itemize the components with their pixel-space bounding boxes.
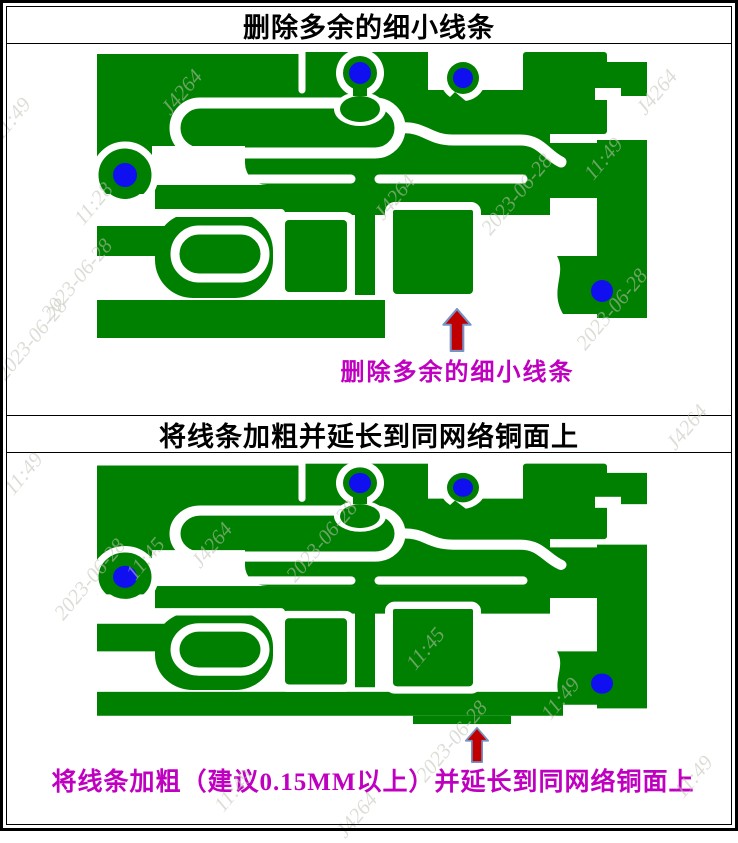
pcb-copper-art — [95, 460, 665, 736]
panel2-title: 将线条加粗并延长到同网络铜面上 — [7, 415, 731, 453]
up-arrow-icon — [442, 308, 472, 357]
panel1-title: 删除多余的细小线条 — [7, 7, 731, 44]
panel1-annotation: 删除多余的细小线条 — [285, 352, 630, 387]
watermark-text: 2023-06-28 — [0, 294, 73, 385]
watermark-text: 11:49 — [0, 448, 48, 500]
up-arrow-art — [463, 727, 491, 763]
pcb-layout-image-before — [95, 48, 665, 348]
up-arrow-art — [442, 308, 472, 352]
watermark-text: 11:49 — [0, 93, 36, 145]
panel2-annotation: 将线条加粗（建议0.15MM以上）并延长到同网络铜面上 — [20, 762, 726, 798]
pcb-layout-image-after — [95, 460, 665, 736]
pcb-copper-art — [95, 48, 665, 348]
